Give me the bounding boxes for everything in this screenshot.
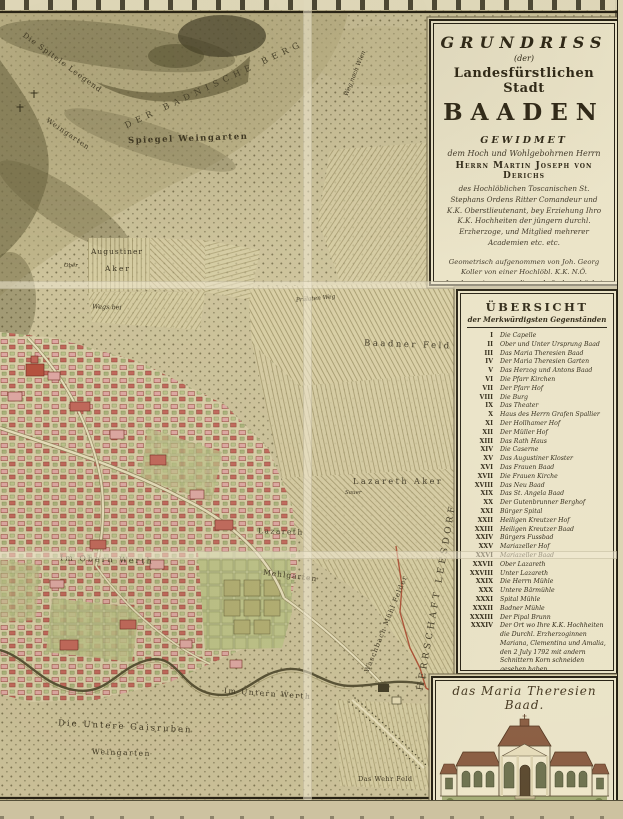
dedication-body: des Hochlöblichen Toscanischen St. Steph… [443,184,605,249]
legend-item-numeral: XXXIII [467,614,500,623]
legend-item-numeral: XII [467,429,500,438]
legend-item-numeral: XXIV [467,534,500,543]
legend-item-numeral: XXII [467,517,500,526]
map-label-ober: Ober [64,263,78,269]
map-title-der: (der) [434,54,614,63]
legend-item-numeral: VI [467,376,500,385]
sheet-edge-top [0,0,623,10]
legend-item: XII Der Müller Hof [467,429,607,438]
legend-item: XIII Das Rath Haus [467,438,607,447]
legend-item-numeral: I [467,332,500,341]
legend-item: XXV Mariazeller Hof [467,543,607,552]
legend-item: XVII Die Frauen Kirche [467,473,607,482]
title-cartouche: GRUNDRISS (der) Landesfürstlichen Stadt … [429,19,619,286]
legend-panel-inner: ÜBERSICHT der Merkwürdigsten Gegenstände… [460,293,614,671]
legend-item-label: Heiligen Kreutzer Hof [500,517,607,526]
legend-item-label: Das Neu Baad [500,482,607,491]
legend-item-label: Der Hollhamer Hof [500,420,607,429]
legend-item-label: Das Herzog und Antons Baad [500,367,607,376]
legend-item-numeral: V [467,367,500,376]
legend-item-numeral: III [467,350,500,359]
legend-item-label: Die Frauen Kirche [500,473,607,482]
legend-item-label: Mariazeller Baad [500,552,607,561]
legend-item-numeral: XXX [467,587,500,596]
legend-item-numeral: IX [467,402,500,411]
legend-item-numeral: XVIII [467,482,500,491]
legend-item-numeral: XXXII [467,605,500,614]
legend-item-label: Untere Bärmühle [500,587,607,596]
legend-item-numeral: XVI [467,464,500,473]
legend-item-label: Spital Mühle [500,596,607,605]
bath-house-engraving [436,714,613,812]
legend-item-label: Die Capelle [500,332,607,341]
legend-list: I Die Capelle II Ober und Unter Ursprung… [467,332,607,671]
legend-item-numeral: XX [467,499,500,508]
legend-item-label: Bürgers Fussbad [500,534,607,543]
legend-item-label: Das St. Angela Baad [500,490,607,499]
legend-item: VIII Die Burg [467,394,607,403]
legend-title: ÜBERSICHT [467,300,607,314]
legend-item: XXXII Badner Mühle [467,605,607,614]
legend-item: XV Das Augustiner Kloster [467,455,607,464]
legend-item-label: Die Pfarr Kirchen [500,376,607,385]
legend-item: XXXIV Der Ort wo Ihre K.K. Hochheiten di… [467,622,607,671]
legend-item-numeral: XVII [467,473,500,482]
legend-item-numeral: IV [467,358,500,367]
map-title-baaden: BAADEN [434,99,614,126]
map-label-augustiner: Augustiner [91,247,143,256]
legend-item: II Ober und Unter Ursprung Baad [467,341,607,350]
legend-item-numeral: XXIII [467,526,500,535]
map-title-stadt: Landesfürstlichen Stadt [434,66,614,96]
legend-item-label: Der Pipal Brunn [500,614,607,623]
picture-caption: das Maria Theresien Baad. [436,684,613,712]
legend-item-numeral: XXV [467,543,500,552]
legend-item-label: Das Augustiner Kloster [500,455,607,464]
legend-item: XI Der Hollhamer Hof [467,420,607,429]
baaden-map-sheet: Die Spitele Leegend DER BADNISCHE BERG S… [0,0,623,819]
legend-item: XXVI Mariazeller Baad [467,552,607,561]
picture-panel-inner: das Maria Theresien Baad. [435,680,614,812]
legend-item: XXXIII Der Pipal Brunn [467,614,607,623]
legend-item: IV Der Maria Theresien Garten [467,358,607,367]
legend-item-label: Der Maria Theresien Garten [500,358,607,367]
legend-item-label: Badner Mühle [500,605,607,614]
legend-item-numeral: VIII [467,394,500,403]
sheet-edge-right [617,0,623,819]
legend-item-label: Die Burg [500,394,607,403]
legend-item: X Haus des Herrn Grafen Spallier [467,411,607,420]
legend-item-label: Mariazeller Hof [500,543,607,552]
map-label-wegs-bei: Wegs bei [92,302,122,311]
map-label-aker: Aker [105,264,131,273]
legend-subtitle: der Merkwürdigsten Gegenständen [467,315,607,328]
legend-item-label: Die Herrn Mühle [500,578,607,587]
legend-item: XXIII Heiligen Kreutzer Baad [467,526,607,535]
legend-item-numeral: XXIX [467,578,500,587]
legend-item-label: Ober und Unter Ursprung Baad [500,341,607,350]
legend-item: XVIII Das Neu Baad [467,482,607,491]
legend-item: XXVII Ober Lazareth [467,561,607,570]
map-title: GRUNDRISS [434,33,614,52]
legend-item: I Die Capelle [467,332,607,341]
legend-item: XIX Das St. Angela Baad [467,490,607,499]
legend-item: VII Der Pfarr Hof [467,385,607,394]
legend-item-numeral: XXVII [467,561,500,570]
sheet-edge-bottom [0,800,623,819]
legend-item: V Das Herzog und Antons Baad [467,367,607,376]
dedicatee-name: Herrn Martin Joseph von Derichs [434,161,614,181]
map-label-lazareth: Lazareth [258,526,304,537]
legend-item-label: Unter Lazareth [500,570,607,579]
legend-item: III Das Maria Theresien Baad [467,350,607,359]
legend-item: VI Die Pfarr Kirchen [467,376,607,385]
legend-item-label: Der Pfarr Hof [500,385,607,394]
legend-item-label: Das Maria Theresien Baad [500,350,607,359]
dedication-subheading: dem Hoch und Wohlgebohrnen Herrn [434,149,614,158]
dedication-heading: GEWIDMET [434,135,614,146]
legend-item-numeral: XXXI [467,596,500,605]
map-label-lazareth-aker: Lazareth Aker [353,477,443,486]
legend-item-numeral: X [467,411,500,420]
legend-item-label: Die Caserne [500,446,607,455]
legend-item-numeral: XI [467,420,500,429]
legend-item-numeral: XIV [467,446,500,455]
legend-item-numeral: XXI [467,508,500,517]
title-cartouche-inner: GRUNDRISS (der) Landesfürstlichen Stadt … [433,23,615,282]
legend-item: XIV Die Caserne [467,446,607,455]
legend-item: XXVIII Unter Lazareth [467,570,607,579]
legend-item: XXIX Die Herrn Mühle [467,578,607,587]
map-label-das-wehr-feld: Das Wehr Feld [358,775,413,783]
legend-item-numeral: XIX [467,490,500,499]
map-label-sauer: Sauer [345,490,361,496]
legend-item-label: Das Theater [500,402,607,411]
legend-item-numeral: XIII [467,438,500,447]
legend-item-numeral: XXVI [467,552,500,561]
legend-item: IX Das Theater [467,402,607,411]
legend-item: XXIV Bürgers Fussbad [467,534,607,543]
legend-item: XXX Untere Bärmühle [467,587,607,596]
legend-item: XVI Das Frauen Baad [467,464,607,473]
legend-item-numeral: II [467,341,500,350]
picture-panel: das Maria Theresien Baad. [431,676,618,816]
legend-item-label: Der Ort wo Ihre K.K. Hochheiten die Durc… [500,622,607,671]
legend-item: XXII Heiligen Kreutzer Hof [467,517,607,526]
surveyor-credit: Geometrisch aufgenommen von Joh. Georg K… [441,257,607,282]
legend-item-label: Ober Lazareth [500,561,607,570]
legend-item: XXI Bürger Spital [467,508,607,517]
legend-item-label: Bürger Spital [500,508,607,517]
legend-panel: ÜBERSICHT der Merkwürdigsten Gegenstände… [456,289,618,675]
legend-item-label: Das Frauen Baad [500,464,607,473]
legend-item-numeral: XXXIV [467,622,500,631]
legend-item-numeral: XXVIII [467,570,500,579]
legend-item: XXXI Spital Mühle [467,596,607,605]
legend-item-numeral: VII [467,385,500,394]
legend-item-label: Haus des Herrn Grafen Spallier [500,411,607,420]
legend-item-label: Heiligen Kreutzer Baad [500,526,607,535]
legend-item: XX Der Gutenbrunner Berghof [467,499,607,508]
legend-item-label: Der Gutenbrunner Berghof [500,499,607,508]
legend-item-numeral: XV [467,455,500,464]
legend-item-label: Das Rath Haus [500,438,607,447]
legend-item-label: Der Müller Hof [500,429,607,438]
